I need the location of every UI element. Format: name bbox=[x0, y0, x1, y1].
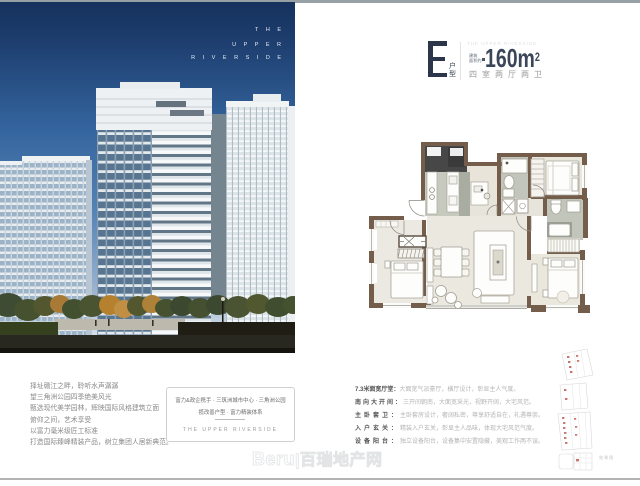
svg-text:U P P E R: U P P E R bbox=[232, 42, 284, 48]
svg-text:R I V E R S I D E: R I V E R S I D E bbox=[191, 55, 284, 61]
svg-text:T H E: T H E bbox=[255, 27, 284, 33]
